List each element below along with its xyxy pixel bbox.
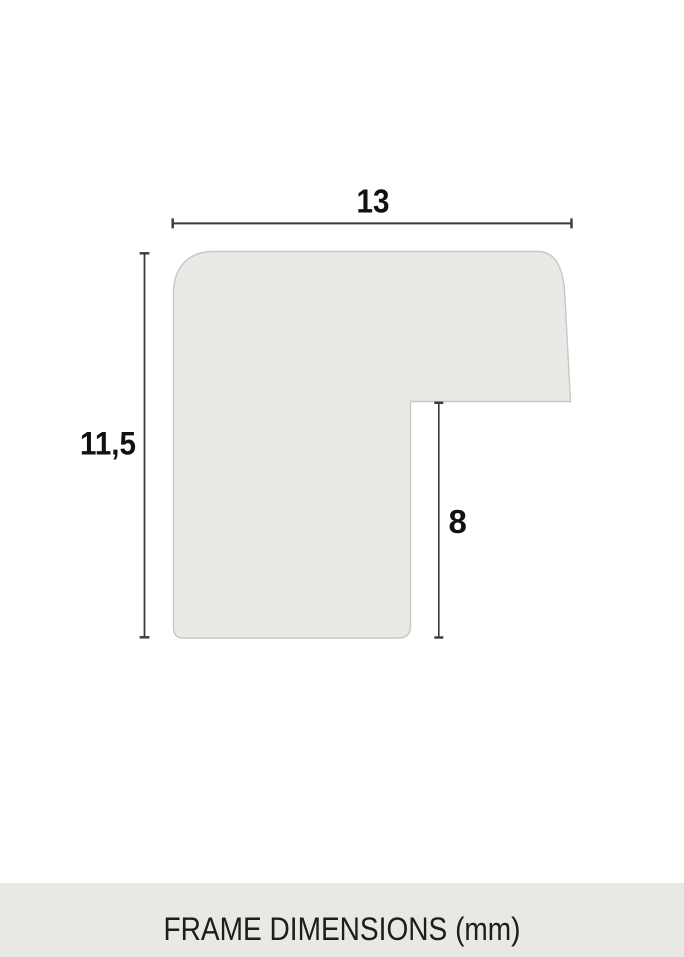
svg-text:13: 13 — [357, 183, 390, 220]
svg-text:8: 8 — [449, 503, 467, 540]
svg-text:11,5: 11,5 — [80, 426, 136, 462]
